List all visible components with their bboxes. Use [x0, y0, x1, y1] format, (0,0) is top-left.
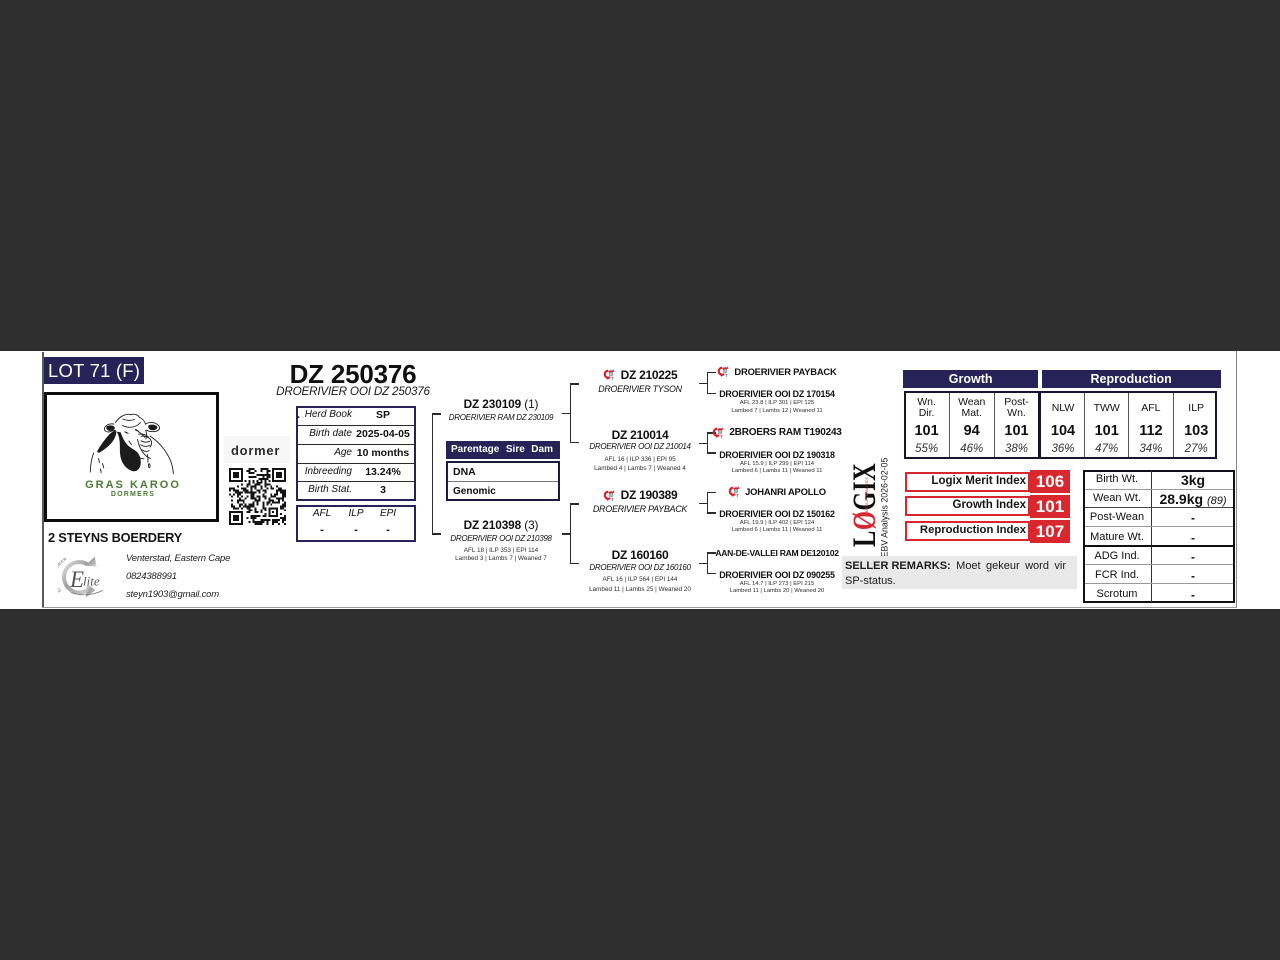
svg-text:T: T [736, 493, 739, 497]
svg-text:lite: lite [83, 574, 100, 589]
svg-text:T: T [611, 497, 614, 501]
svg-text:T: T [726, 373, 729, 377]
svg-text:E: E [69, 567, 84, 592]
svg-text:T: T [721, 434, 724, 438]
svg-text:T: T [611, 376, 614, 380]
